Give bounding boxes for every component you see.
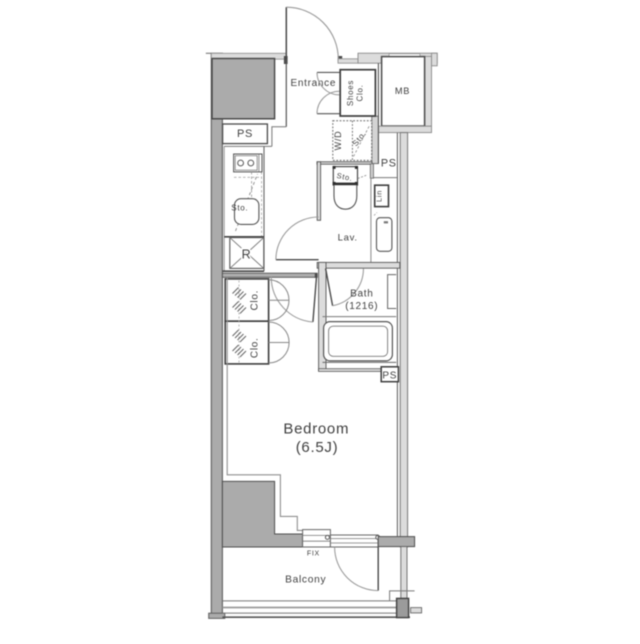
svg-text:W/D: W/D bbox=[333, 131, 343, 151]
svg-text:Bedroom: Bedroom bbox=[283, 421, 349, 438]
svg-text:PS: PS bbox=[237, 128, 253, 140]
svg-text:Balcony: Balcony bbox=[285, 574, 326, 585]
svg-text:(1216): (1216) bbox=[345, 301, 378, 312]
svg-text:(6.5J): (6.5J) bbox=[296, 439, 339, 456]
svg-text:Lin: Lin bbox=[375, 190, 384, 202]
svg-text:Clo.: Clo. bbox=[249, 338, 260, 359]
svg-text:Sto.: Sto. bbox=[231, 204, 248, 213]
svg-text:Shoes: Shoes bbox=[346, 80, 355, 106]
svg-text:R: R bbox=[242, 248, 252, 262]
svg-text:Lav.: Lav. bbox=[338, 232, 358, 243]
svg-text:Entrance: Entrance bbox=[290, 78, 336, 89]
svg-text:Bath: Bath bbox=[350, 289, 373, 300]
svg-text:Clo.: Clo. bbox=[356, 84, 365, 101]
svg-text:PS: PS bbox=[381, 158, 397, 170]
svg-text:FIX: FIX bbox=[307, 551, 320, 558]
svg-text:PS: PS bbox=[382, 370, 397, 381]
svg-text:Clo.: Clo. bbox=[249, 290, 260, 311]
svg-text:MB: MB bbox=[395, 86, 410, 96]
